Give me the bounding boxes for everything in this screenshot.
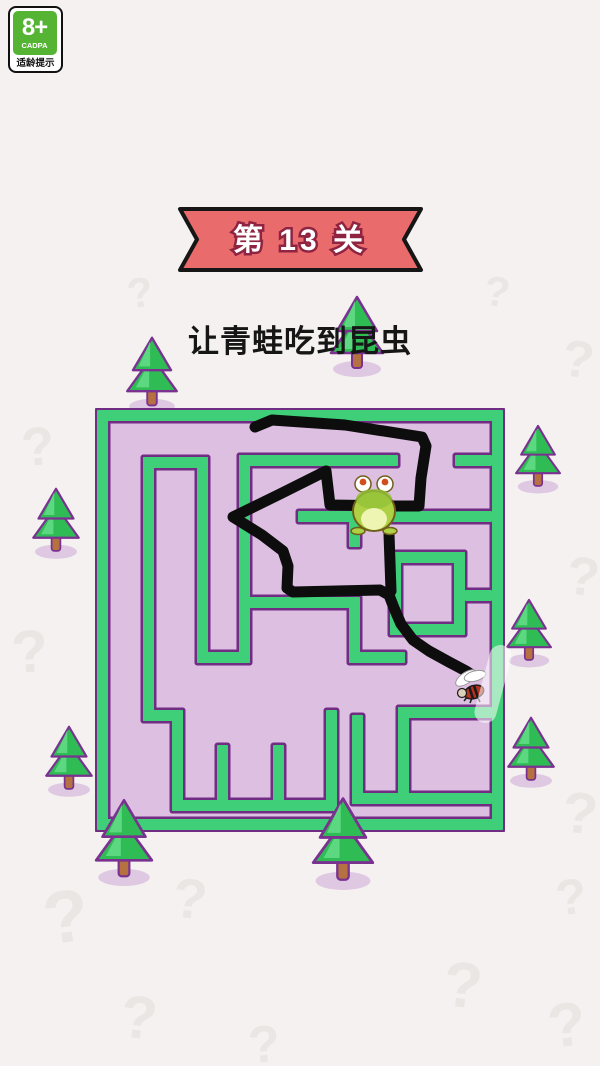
maze-wall (390, 552, 465, 563)
tree-foliage-upper-light (517, 603, 527, 625)
tree-foliage-upper (521, 426, 555, 455)
tree-foliage-upper-light (44, 492, 55, 515)
maze-wall (454, 552, 465, 635)
tree-foliage-upper-light (526, 429, 536, 451)
question-mark: ? (441, 951, 486, 1018)
maze-wall (217, 745, 228, 811)
tree-foliage-lower (507, 617, 551, 647)
level-banner-text: 第 13 关 (233, 223, 367, 257)
tree-foliage-lower (33, 506, 79, 538)
question-mark: ? (38, 877, 93, 957)
maze-wall (455, 455, 492, 466)
question-mark: ? (563, 548, 600, 606)
tree-shadow (316, 872, 371, 890)
question-mark: ? (118, 986, 161, 1050)
level-banner: 第 13 关 (177, 206, 424, 273)
tree-foliage-lower (46, 744, 92, 776)
drawn-path-frog-drop (389, 534, 391, 591)
maze-wall (143, 457, 154, 721)
tree (511, 421, 565, 495)
tree-foliage-upper (514, 718, 549, 748)
question-mark: ? (481, 269, 512, 314)
question-mark: ? (553, 871, 589, 924)
tree (503, 712, 559, 790)
question-mark: ? (544, 993, 589, 1059)
game-screen: ?????????????? (0, 0, 600, 1066)
question-mark: ? (124, 270, 155, 315)
frog-belly (361, 508, 387, 530)
tree-trunk (65, 772, 74, 789)
maze-wall (239, 455, 250, 663)
age-rating-badge: 8+ CADPA 适龄提示 (8, 6, 63, 73)
maze-wall (349, 652, 405, 663)
question-mark: ? (560, 784, 600, 845)
tree-foliage-lower-light (41, 512, 53, 535)
tree-foliage-upper (52, 727, 87, 757)
maze-wall (273, 745, 284, 811)
tree-trunk (337, 858, 348, 880)
maze-wall (465, 590, 492, 601)
tree-shadow (35, 545, 77, 559)
maze-wall (492, 410, 503, 830)
tree-trunk (525, 644, 533, 660)
tree-foliage-lower (516, 443, 560, 473)
maze-wall (239, 597, 355, 608)
maze-wall (172, 710, 183, 811)
tree-trunk (527, 763, 536, 780)
tree-foliage-lower-light (516, 741, 528, 764)
tree-shadow (509, 654, 550, 668)
tree-trunk (534, 470, 542, 486)
maze-wall (398, 707, 409, 803)
maze-wall (97, 819, 503, 830)
frog-head-shade (356, 489, 392, 509)
tree-trunk (147, 387, 157, 405)
tree-foliage-upper (39, 489, 74, 519)
level-goal-text: 让青蛙吃到昆虫 (0, 316, 600, 361)
question-mark: ? (170, 869, 210, 928)
tree (28, 484, 84, 560)
age-rating-org: CADPA (21, 42, 47, 50)
question-mark: ? (246, 1018, 281, 1066)
tree-trunk (52, 534, 61, 551)
tree-foliage-lower-light (54, 750, 66, 773)
maze-wall (352, 715, 363, 804)
tree-foliage-upper-light (519, 721, 530, 744)
maze-draw-area[interactable] (95, 408, 505, 832)
maze-wall (197, 457, 208, 663)
tree-trunk (119, 856, 130, 876)
tree-shadow (98, 869, 149, 886)
tree-foliage-upper-light (57, 730, 68, 753)
question-mark: ? (9, 621, 51, 684)
tree-foliage-lower (508, 735, 554, 767)
tree-foliage-lower (127, 357, 177, 391)
fly-head (458, 689, 467, 698)
frog-pupil (382, 479, 389, 486)
tree-foliage-lower-light (515, 622, 527, 644)
maze-wall (326, 710, 337, 811)
maze-wall (352, 793, 492, 804)
tree-foliage-upper (512, 600, 546, 629)
question-mark: ? (19, 418, 57, 475)
age-rating-label: 适龄提示 (10, 55, 61, 69)
maze-wall (239, 455, 398, 466)
tree-foliage-lower-light (324, 828, 340, 858)
age-rating-number: 8+ (22, 16, 47, 40)
tree-shadow (48, 783, 90, 797)
tree-foliage-lower-light (106, 828, 121, 856)
frog-pupil (360, 479, 367, 486)
maze-wall (97, 410, 108, 830)
maze-wall (172, 800, 337, 811)
tree (41, 720, 97, 800)
tree-shadow (333, 361, 381, 377)
tree-foliage-lower-light (136, 363, 149, 388)
age-rating-green-panel: 8+ CADPA (13, 11, 57, 55)
tree-shadow (518, 480, 559, 494)
tree-foliage-lower-light (524, 448, 536, 470)
tree-shadow (510, 774, 552, 788)
